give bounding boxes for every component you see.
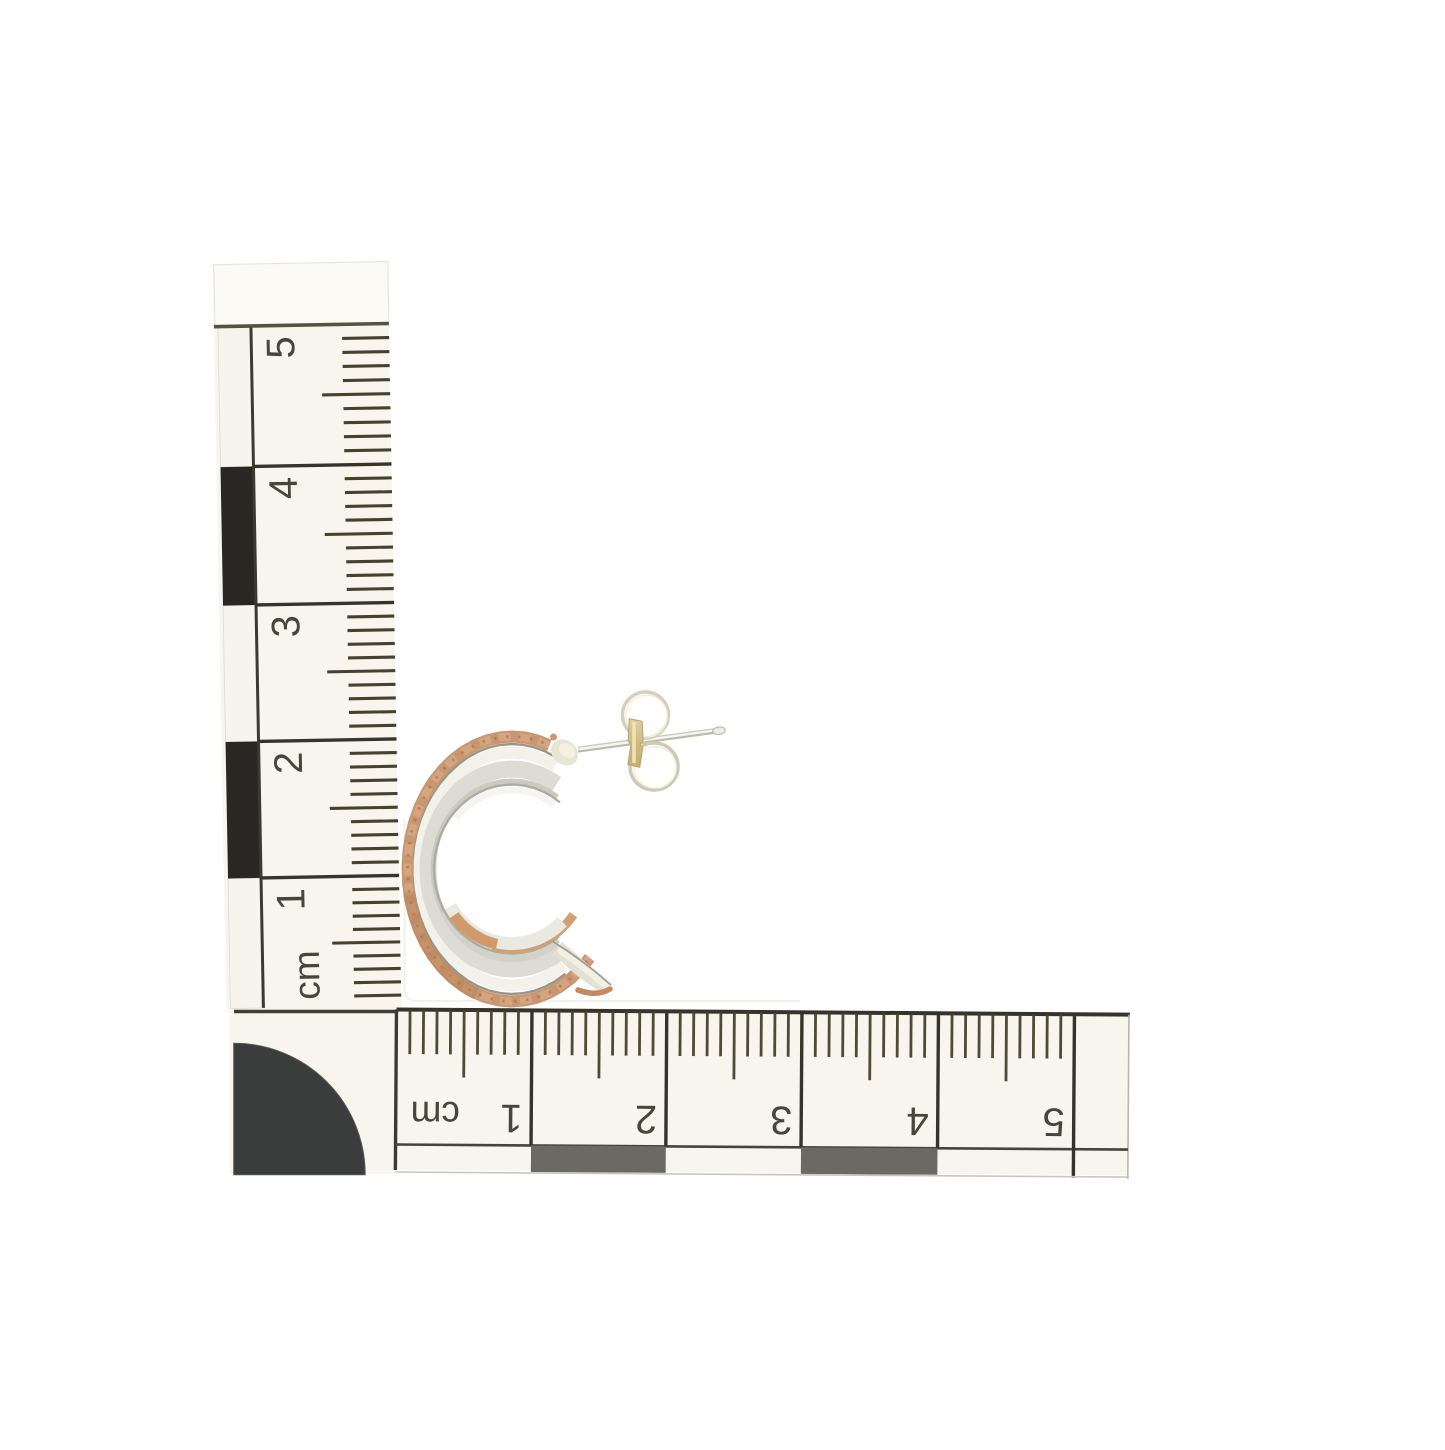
svg-text:1: 1 [269, 888, 313, 911]
svg-text:cm: cm [286, 950, 328, 1000]
svg-text:2: 2 [267, 751, 311, 774]
svg-text:2: 2 [635, 1097, 658, 1141]
svg-text:cm: cm [410, 1094, 460, 1135]
svg-text:1: 1 [500, 1096, 523, 1140]
svg-text:3: 3 [264, 615, 308, 638]
svg-text:4: 4 [262, 476, 306, 499]
svg-text:4: 4 [906, 1099, 929, 1143]
svg-text:5: 5 [259, 336, 303, 359]
svg-text:5: 5 [1042, 1100, 1065, 1144]
svg-text:3: 3 [770, 1098, 793, 1142]
